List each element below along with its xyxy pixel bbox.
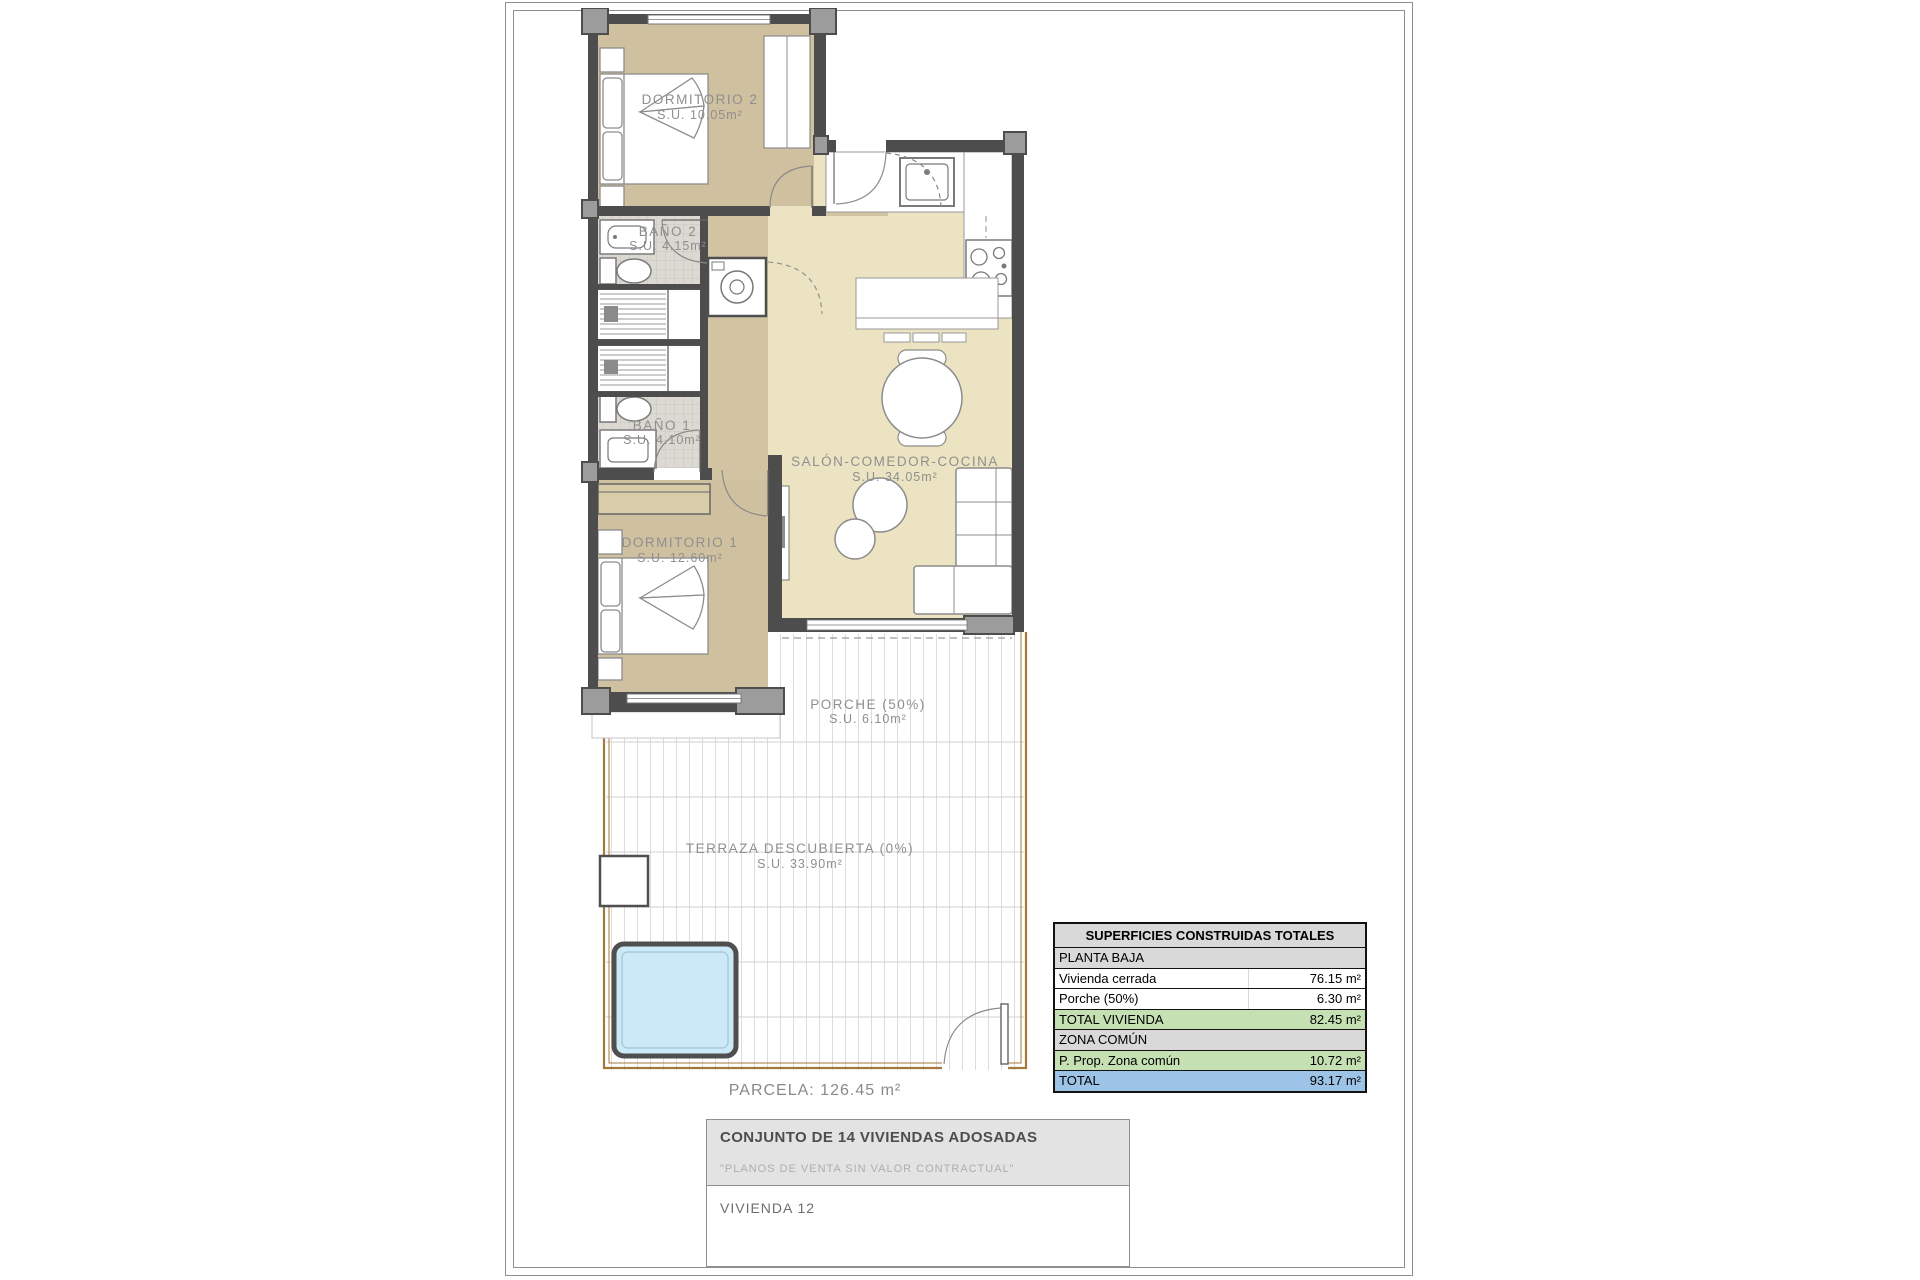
- table-row: ZONA COMÚN: [1055, 1030, 1365, 1051]
- row-label: ZONA COMÚN: [1055, 1030, 1249, 1050]
- table-row: Porche (50%) 6.30 m²: [1055, 989, 1365, 1010]
- row-label: TOTAL: [1055, 1071, 1249, 1091]
- title-block: CONJUNTO DE 14 VIVIENDAS ADOSADAS "PLANO…: [706, 1119, 1130, 1267]
- table-row: PLANTA BAJA: [1055, 948, 1365, 969]
- row-label: Porche (50%): [1055, 989, 1249, 1009]
- row-label: TOTAL VIVIENDA: [1055, 1010, 1249, 1030]
- room-area-terraza: S.U. 33.90m²: [757, 857, 843, 871]
- disclaimer-text: "PLANOS DE VENTA SIN VALOR CONTRACTUAL": [720, 1163, 1116, 1175]
- table-row: Vivienda cerrada 76.15 m²: [1055, 969, 1365, 990]
- table-row: TOTAL VIVIENDA 82.45 m²: [1055, 1010, 1365, 1031]
- table-row: P. Prop. Zona común 10.72 m²: [1055, 1051, 1365, 1072]
- row-value: [1249, 1030, 1365, 1050]
- row-value: 82.45 m²: [1249, 1010, 1365, 1030]
- row-value: 6.30 m²: [1249, 989, 1365, 1009]
- room-area-dormitorio1: S.U. 12.60m²: [637, 551, 723, 565]
- row-label: Vivienda cerrada: [1055, 969, 1249, 989]
- dormitorio1-wardrobe: [598, 484, 710, 514]
- row-label: PLANTA BAJA: [1055, 948, 1249, 968]
- room-label-bano2: BAÑO 2: [639, 224, 698, 239]
- areas-table-title: SUPERFICIES CONSTRUIDAS TOTALES: [1055, 924, 1365, 948]
- room-area-porche: S.U. 6.10m²: [829, 712, 907, 726]
- project-title: CONJUNTO DE 14 VIVIENDAS ADOSADAS: [720, 1129, 1116, 1146]
- unit-label: VIVIENDA 12: [720, 1200, 1116, 1216]
- dormitorio2-wardrobe: [764, 36, 810, 148]
- pool: [614, 944, 736, 1056]
- room-label-porche: PORCHE (50%): [810, 697, 926, 712]
- room-label-terraza: TERRAZA DESCUBIERTA (0%): [686, 841, 914, 856]
- outdoor-storage: [600, 856, 648, 906]
- parcela-label: PARCELA: 126.45 m²: [630, 1082, 1000, 1100]
- row-value: 10.72 m²: [1249, 1051, 1365, 1071]
- row-value: 93.17 m²: [1249, 1071, 1365, 1091]
- room-area-bano1: S.U. 4.10m²: [623, 433, 701, 447]
- title-block-header: CONJUNTO DE 14 VIVIENDAS ADOSADAS "PLANO…: [706, 1119, 1130, 1186]
- room-area-dormitorio2: S.U. 10.05m²: [657, 108, 743, 122]
- room-label-salon: SALÓN-COMEDOR-COCINA: [791, 454, 999, 469]
- hall-floor: [708, 216, 768, 480]
- row-value: 76.15 m²: [1249, 969, 1365, 989]
- table-row: TOTAL 93.17 m²: [1055, 1071, 1365, 1091]
- row-label: P. Prop. Zona común: [1055, 1051, 1249, 1071]
- room-label-dormitorio1: DORMITORIO 1: [622, 535, 739, 550]
- page: { "plan": { "parcela_label": "PARCELA: 1…: [0, 0, 1920, 1280]
- room-area-salon: S.U. 34.05m²: [852, 470, 938, 484]
- areas-table: SUPERFICIES CONSTRUIDAS TOTALES PLANTA B…: [1053, 922, 1367, 1093]
- title-block-body: VIVIENDA 12: [706, 1186, 1130, 1267]
- room-label-bano1: BAÑO 1: [633, 418, 692, 433]
- room-area-bano2: S.U. 4.15m²: [629, 239, 707, 253]
- floor-plan: DORMITORIO 2 S.U. 10.05m² BAÑO 2 S.U. 4.…: [560, 8, 1060, 1088]
- row-value: [1249, 948, 1365, 968]
- terrace-step: [592, 712, 780, 738]
- room-label-dormitorio2: DORMITORIO 2: [642, 92, 759, 107]
